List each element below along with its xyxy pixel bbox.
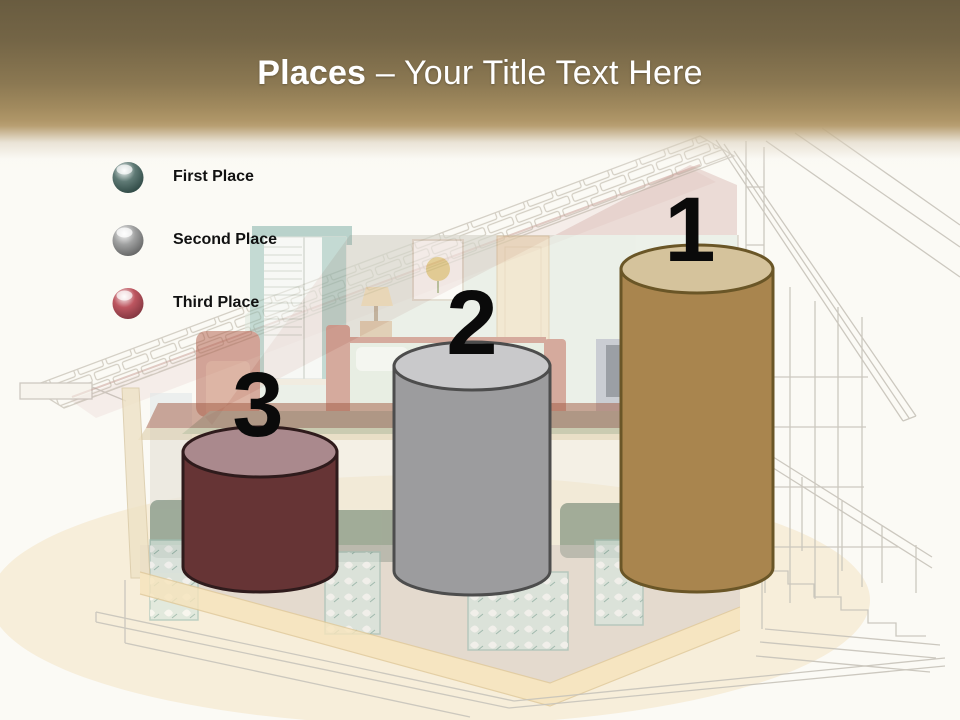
slide-canvas: Places – Your Title Text Here First Plac… (0, 0, 960, 720)
legend-label: Second Place (173, 231, 277, 249)
rank-number-3: 3 (198, 359, 318, 451)
podium-cylinder-first (617, 241, 777, 596)
rank-number-2: 2 (412, 277, 532, 369)
slide-title: Places – Your Title Text Here (0, 54, 960, 93)
legend: First Place Second Place (111, 160, 277, 349)
title-topic: Places (257, 54, 366, 92)
legend-item-second-place: Second Place (111, 223, 277, 257)
legend-item-first-place: First Place (111, 160, 277, 194)
legend-item-third-place: Third Place (111, 286, 277, 320)
podium-cylinder-second (390, 338, 554, 599)
second-place-sphere-icon (111, 223, 145, 257)
title-subtitle: – Your Title Text Here (366, 54, 703, 92)
rank-number-1: 1 (630, 184, 750, 276)
third-place-sphere-icon (111, 286, 145, 320)
legend-label: First Place (173, 168, 254, 186)
legend-label: Third Place (173, 294, 259, 312)
first-place-sphere-icon (111, 160, 145, 194)
